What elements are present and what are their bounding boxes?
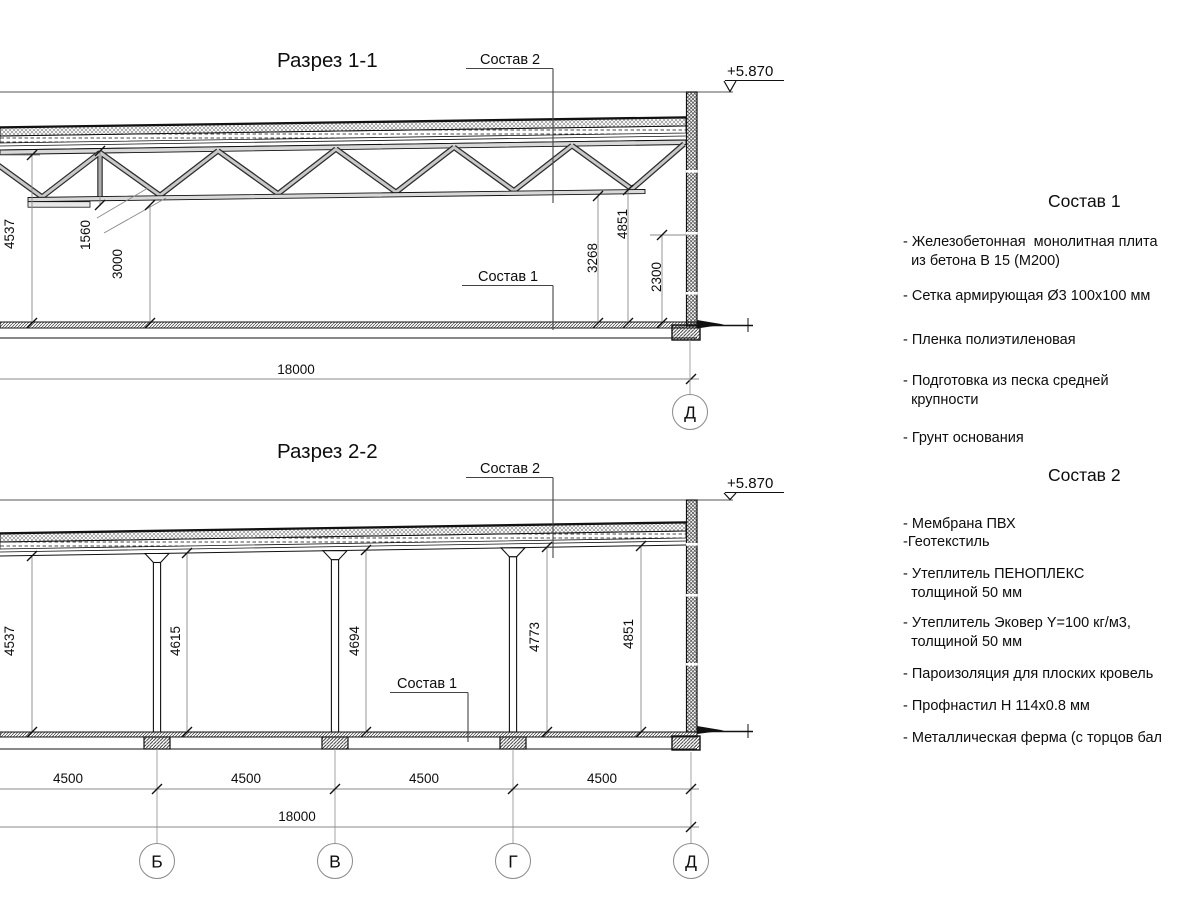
dim-3268-1-1: 3268	[585, 243, 600, 273]
dim-4500-2: 4500	[231, 771, 261, 786]
wall-footing-2	[672, 736, 700, 750]
axis-letter-b: Б	[151, 852, 162, 872]
sostav1-item: - Железобетонная монолитная плита из бет…	[903, 233, 1200, 271]
column-capital	[145, 554, 169, 563]
dim-4500-4: 4500	[587, 771, 617, 786]
span-dim-1-1: 18000 Д	[0, 340, 708, 430]
column-shaft	[153, 563, 160, 733]
footing	[322, 737, 348, 749]
axis-bubbles: Б В Г Д	[140, 844, 709, 879]
sostav2-item: - Утеплитель Эковер Y=100 кг/м3, толщино…	[903, 614, 1200, 652]
sostav2-item: - Утеплитель ПЕНОПЛЕКС толщиной 50 мм	[903, 565, 1200, 603]
blueprint-page: { "sec1": { "title": "Разрез 1-1", "labe…	[0, 0, 1200, 900]
dim-4694-2-2: 4694	[347, 625, 362, 656]
dim-4615-2-2: 4615	[168, 626, 183, 656]
dim-ticks-1-1	[27, 146, 667, 328]
sostav1-item: - Грунт основания	[903, 429, 1200, 448]
sostav2-heading: Состав 2	[1048, 465, 1121, 486]
svg-text:Состав 2: Состав 2	[480, 461, 540, 477]
dim-4851-2-2: 4851	[621, 619, 636, 649]
svg-text:Состав 1: Состав 1	[397, 676, 457, 692]
section-2-2: Разрез 2-2	[0, 440, 784, 879]
dim-18000-2-2: 18000	[278, 809, 316, 824]
dim-4851-1-1: 4851	[615, 209, 630, 239]
dim-4773-2-2: 4773	[527, 622, 542, 652]
dim-4537-2-2: 4537	[2, 626, 17, 656]
elevation-mark-1-1: +5.870	[724, 63, 784, 92]
sostav2-item: -Геотекстиль	[903, 533, 1200, 552]
wall-axis-d-2	[686, 500, 698, 732]
footing	[144, 737, 170, 749]
floor-slab-2	[0, 724, 753, 750]
footing	[500, 737, 526, 749]
sostav2-item: - Профнастил Н 114x0.8 мм	[903, 697, 1200, 716]
column-shaft	[331, 560, 338, 732]
wall-axis-d	[686, 92, 698, 326]
dim-3000-1-1: 3000	[110, 249, 125, 279]
dim-4537-1-1: 4537	[2, 219, 17, 249]
column-capital	[323, 551, 347, 560]
dim-18000-1-1: 18000	[277, 362, 315, 377]
svg-text:+5.870: +5.870	[727, 475, 773, 492]
sostav2-item: - Пароизоляция для плоских кровель	[903, 665, 1200, 684]
bay-dims: 4500 4500 4500 4500 18000	[0, 749, 699, 843]
sostav1-item: - Сетка армирующая Ø3 100x100 мм	[903, 287, 1200, 306]
sostav1-callout-1-1: Состав 1	[462, 269, 553, 330]
sostav1-item: - Пленка полиэтиленовая	[903, 331, 1200, 350]
floor-slab	[0, 318, 753, 340]
sostav1-item: - Подготовка из песка средней крупности	[903, 372, 1200, 410]
axis-letter-d-1-1: Д	[684, 403, 696, 423]
truss-bearing-seat	[28, 202, 90, 208]
sections-drawing: Разрез 1-1	[0, 0, 1200, 900]
axis-letter-g: Г	[508, 852, 518, 872]
flashing-2	[697, 726, 724, 734]
elevation-mark-2-2: +5.870	[724, 475, 784, 500]
sostav2-item: - Металлическая ферма (с торцов бал	[903, 729, 1200, 748]
svg-text:Состав 2: Состав 2	[480, 52, 540, 68]
roof-truss	[0, 140, 686, 207]
dim-1560-1-1: 1560	[78, 220, 93, 250]
dim-4500-1: 4500	[53, 771, 83, 786]
dim-2300-1-1: 2300	[649, 262, 664, 292]
section-1-1: Разрез 1-1	[0, 49, 784, 430]
axis-letter-v: В	[329, 852, 341, 872]
sostav2-item: - Мембрана ПВХ	[903, 515, 1200, 534]
sostav1-heading: Состав 1	[1048, 191, 1121, 212]
column-shaft	[509, 557, 516, 732]
flashing	[697, 320, 724, 329]
wall-footing	[672, 325, 700, 340]
section-2-2-title: Разрез 2-2	[277, 440, 378, 463]
dims-right-1-1	[598, 190, 688, 322]
axis-letter-d: Д	[685, 852, 697, 872]
svg-text:Состав 1: Состав 1	[478, 269, 538, 285]
dim-4500-3: 4500	[409, 771, 439, 786]
section-1-1-title: Разрез 1-1	[277, 49, 378, 72]
column-capital	[501, 548, 525, 557]
svg-text:+5.870: +5.870	[727, 63, 773, 80]
